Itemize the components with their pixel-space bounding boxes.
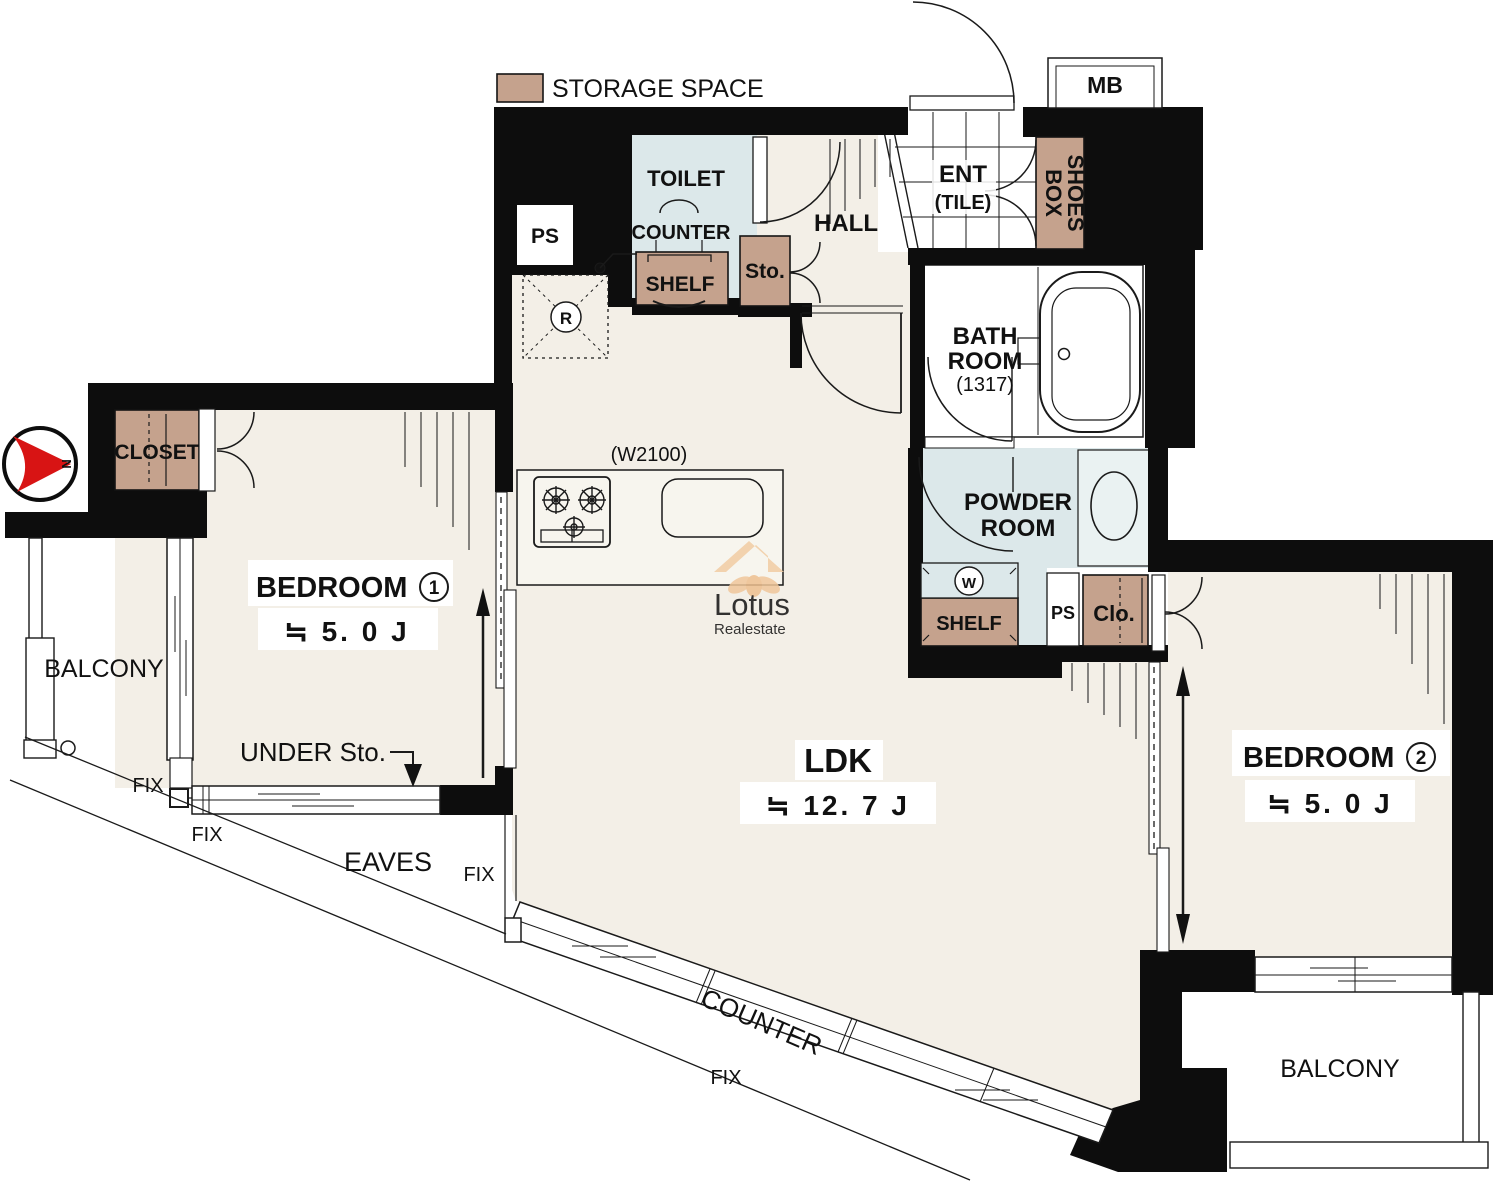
bath-size-label: (1317)	[956, 374, 1014, 396]
powder-sink-counter	[1078, 450, 1150, 566]
clo-label: Clo.	[1093, 601, 1135, 626]
powder-label-2: ROOM	[981, 515, 1056, 542]
fix-label-3: FIX	[463, 864, 494, 886]
shoes-box-label-2: BOX	[1041, 169, 1066, 217]
fix-label-1: FIX	[132, 775, 163, 797]
fridge-label: R	[560, 309, 572, 328]
balcony-left-label: BALCONY	[44, 655, 164, 683]
powder-label-1: POWDER	[964, 489, 1072, 516]
ldk-label: LDK	[804, 742, 872, 779]
powder-ps-label: PS	[1051, 603, 1075, 623]
bedroom1-number: 1	[429, 578, 440, 599]
ent-tile-label: (TILE)	[935, 192, 992, 214]
legend-swatch	[497, 74, 543, 102]
bedroom2-number: 2	[1416, 748, 1427, 769]
bedroom2-size: ≒ 5. 0 J	[1267, 788, 1392, 819]
fix-label-4: FIX	[710, 1067, 741, 1089]
balcony-right-label: BALCONY	[1280, 1055, 1400, 1083]
closet-label: CLOSET	[114, 441, 199, 464]
fix-label-2: FIX	[191, 824, 222, 846]
bedroom2-label: BEDROOM	[1243, 742, 1394, 774]
legend-storage-label: STORAGE SPACE	[552, 75, 764, 103]
floor-plan: N Lotus Realestate STORAGE SPACE TOILET …	[0, 0, 1500, 1187]
watermark-sub: Realestate	[714, 621, 786, 638]
watermark-name: Lotus	[714, 587, 790, 622]
compass: N	[4, 428, 76, 500]
bathtub	[1018, 267, 1140, 435]
bedroom1-size: ≒ 5. 0 J	[284, 616, 409, 647]
bedroom1-label: BEDROOM	[256, 572, 407, 604]
toilet-label: TOILET	[647, 166, 725, 191]
hall-label: HALL	[814, 210, 878, 237]
eaves-label: EAVES	[344, 847, 432, 877]
toilet-shelf-label: SHELF	[646, 273, 715, 296]
ldk-size: ≒ 12. 7 J	[766, 790, 910, 821]
bath-label-2: ROOM	[948, 348, 1023, 375]
kitchen-counter	[517, 470, 783, 585]
washer-label: W	[962, 575, 977, 592]
ps-top-label: PS	[531, 225, 559, 248]
mb-label: MB	[1087, 72, 1123, 98]
powder-shelf-label: SHELF	[936, 613, 1002, 635]
bath-label-1: BATH	[953, 323, 1018, 350]
ent-label: ENT	[939, 161, 987, 188]
kitchen-width-label: (W2100)	[611, 444, 688, 466]
sto-label: Sto.	[745, 260, 785, 283]
floor-plan-page: N Lotus Realestate STORAGE SPACE TOILET …	[0, 0, 1500, 1187]
under-sto-label: UNDER Sto.	[240, 737, 386, 767]
toilet-counter-label: COUNTER	[632, 222, 731, 244]
entrance-door	[910, 96, 1014, 110]
compass-north-label: N	[59, 459, 74, 468]
